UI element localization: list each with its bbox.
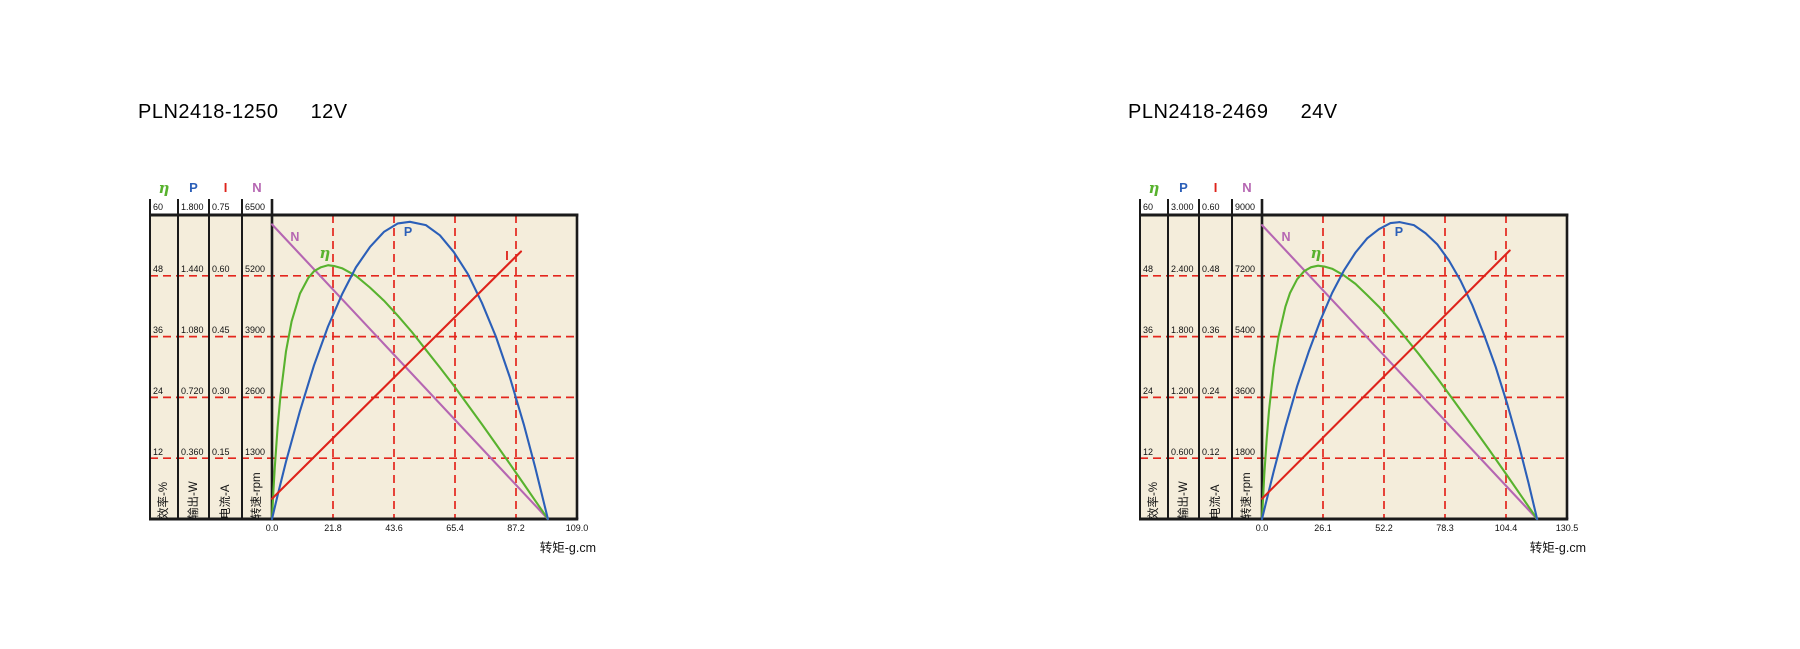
axis-tick-value-N: 2600 <box>245 386 265 396</box>
axis-tick-value-N: 3900 <box>245 325 265 335</box>
x-tick-label: 109.0 <box>555 523 599 533</box>
axis-label-I: 电流-A <box>1209 449 1223 519</box>
x-tick-label: 52.2 <box>1362 523 1406 533</box>
axis-tick-value-N: 5200 <box>245 264 265 274</box>
axis-tick-value-P: 0.720 <box>181 386 204 396</box>
axis-max-value-N: 6500 <box>245 202 265 212</box>
x-tick-label: 87.2 <box>494 523 538 533</box>
x-tick-label: 104.4 <box>1484 523 1528 533</box>
axis-tick-value-I: 0.60 <box>212 264 230 274</box>
axis-tick-value-I: 0.45 <box>212 325 230 335</box>
axis-label-P: 输出-W <box>1177 449 1191 519</box>
x-tick-label: 0.0 <box>1240 523 1284 533</box>
axis-tick-value-N: 3600 <box>1235 386 1255 396</box>
axis-tick-value-P: 1.800 <box>1171 325 1194 335</box>
curve-label-efficiency: η <box>1306 246 1326 260</box>
chart-pln2418-1250: PLN2418-125012Vη6048362412效率-%P1.8001.44… <box>130 85 630 605</box>
axis-max-value-N: 9000 <box>1235 202 1255 212</box>
curve-label-output-power: P <box>398 225 418 239</box>
page: PLN2418-125012Vη6048362412效率-%P1.8001.44… <box>0 0 1800 649</box>
x-tick-label: 43.6 <box>372 523 416 533</box>
x-axis-title: 转矩-g.cm <box>476 537 596 556</box>
axis-tick-value-I: 0.36 <box>1202 325 1220 335</box>
axis-tick-value-I: 0.48 <box>1202 264 1220 274</box>
legend-P: P <box>179 181 209 195</box>
axis-tick-value-I: 0.30 <box>212 386 230 396</box>
curve-label-current: I <box>497 249 517 263</box>
legend-I: I <box>1201 181 1231 195</box>
axis-max-value-I: 0.60 <box>1202 202 1220 212</box>
legend-eta: η <box>1139 181 1169 195</box>
axis-label-eta: 效率-% <box>1147 449 1161 519</box>
x-tick-label: 0.0 <box>250 523 294 533</box>
legend-P: P <box>1169 181 1199 195</box>
x-tick-label: 130.5 <box>1545 523 1589 533</box>
x-tick-label: 65.4 <box>433 523 477 533</box>
axis-tick-value-eta: 48 <box>153 264 163 274</box>
x-tick-label: 78.3 <box>1423 523 1467 533</box>
axis-tick-value-P: 1.200 <box>1171 386 1194 396</box>
axis-max-value-P: 3.000 <box>1171 202 1194 212</box>
curve-label-speed: N <box>285 230 305 244</box>
x-tick-label: 21.8 <box>311 523 355 533</box>
axis-label-N: 转速-rpm <box>250 449 264 519</box>
curve-label-speed: N <box>1276 230 1296 244</box>
axis-tick-value-eta: 36 <box>153 325 163 335</box>
axis-tick-value-P: 2.400 <box>1171 264 1194 274</box>
axis-tick-value-eta: 36 <box>1143 325 1153 335</box>
chart-pln2418-2469: PLN2418-246924Vη6048362412效率-%P3.0002.40… <box>1120 85 1620 605</box>
axis-tick-value-eta: 24 <box>153 386 163 396</box>
axis-max-value-P: 1.800 <box>181 202 204 212</box>
axis-label-eta: 效率-% <box>157 449 171 519</box>
axis-label-N: 转速-rpm <box>1240 449 1254 519</box>
curve-label-efficiency: η <box>315 246 335 260</box>
curve-label-output-power: P <box>1389 225 1409 239</box>
axis-max-value-I: 0.75 <box>212 202 230 212</box>
axis-tick-value-I: 0.24 <box>1202 386 1220 396</box>
x-tick-label: 26.1 <box>1301 523 1345 533</box>
curve-label-current: I <box>1486 249 1506 263</box>
legend-I: I <box>211 181 241 195</box>
legend-N: N <box>242 181 272 195</box>
x-axis-title: 转矩-g.cm <box>1466 537 1586 556</box>
axis-tick-value-eta: 24 <box>1143 386 1153 396</box>
legend-eta: η <box>149 181 179 195</box>
axis-label-P: 输出-W <box>187 449 201 519</box>
axis-max-value-eta: 60 <box>153 202 163 212</box>
axis-tick-value-N: 5400 <box>1235 325 1255 335</box>
axis-tick-value-eta: 48 <box>1143 264 1153 274</box>
axis-tick-value-P: 1.080 <box>181 325 204 335</box>
axis-label-I: 电流-A <box>219 449 233 519</box>
axis-tick-value-P: 1.440 <box>181 264 204 274</box>
legend-N: N <box>1232 181 1262 195</box>
axis-tick-value-N: 7200 <box>1235 264 1255 274</box>
axis-max-value-eta: 60 <box>1143 202 1153 212</box>
